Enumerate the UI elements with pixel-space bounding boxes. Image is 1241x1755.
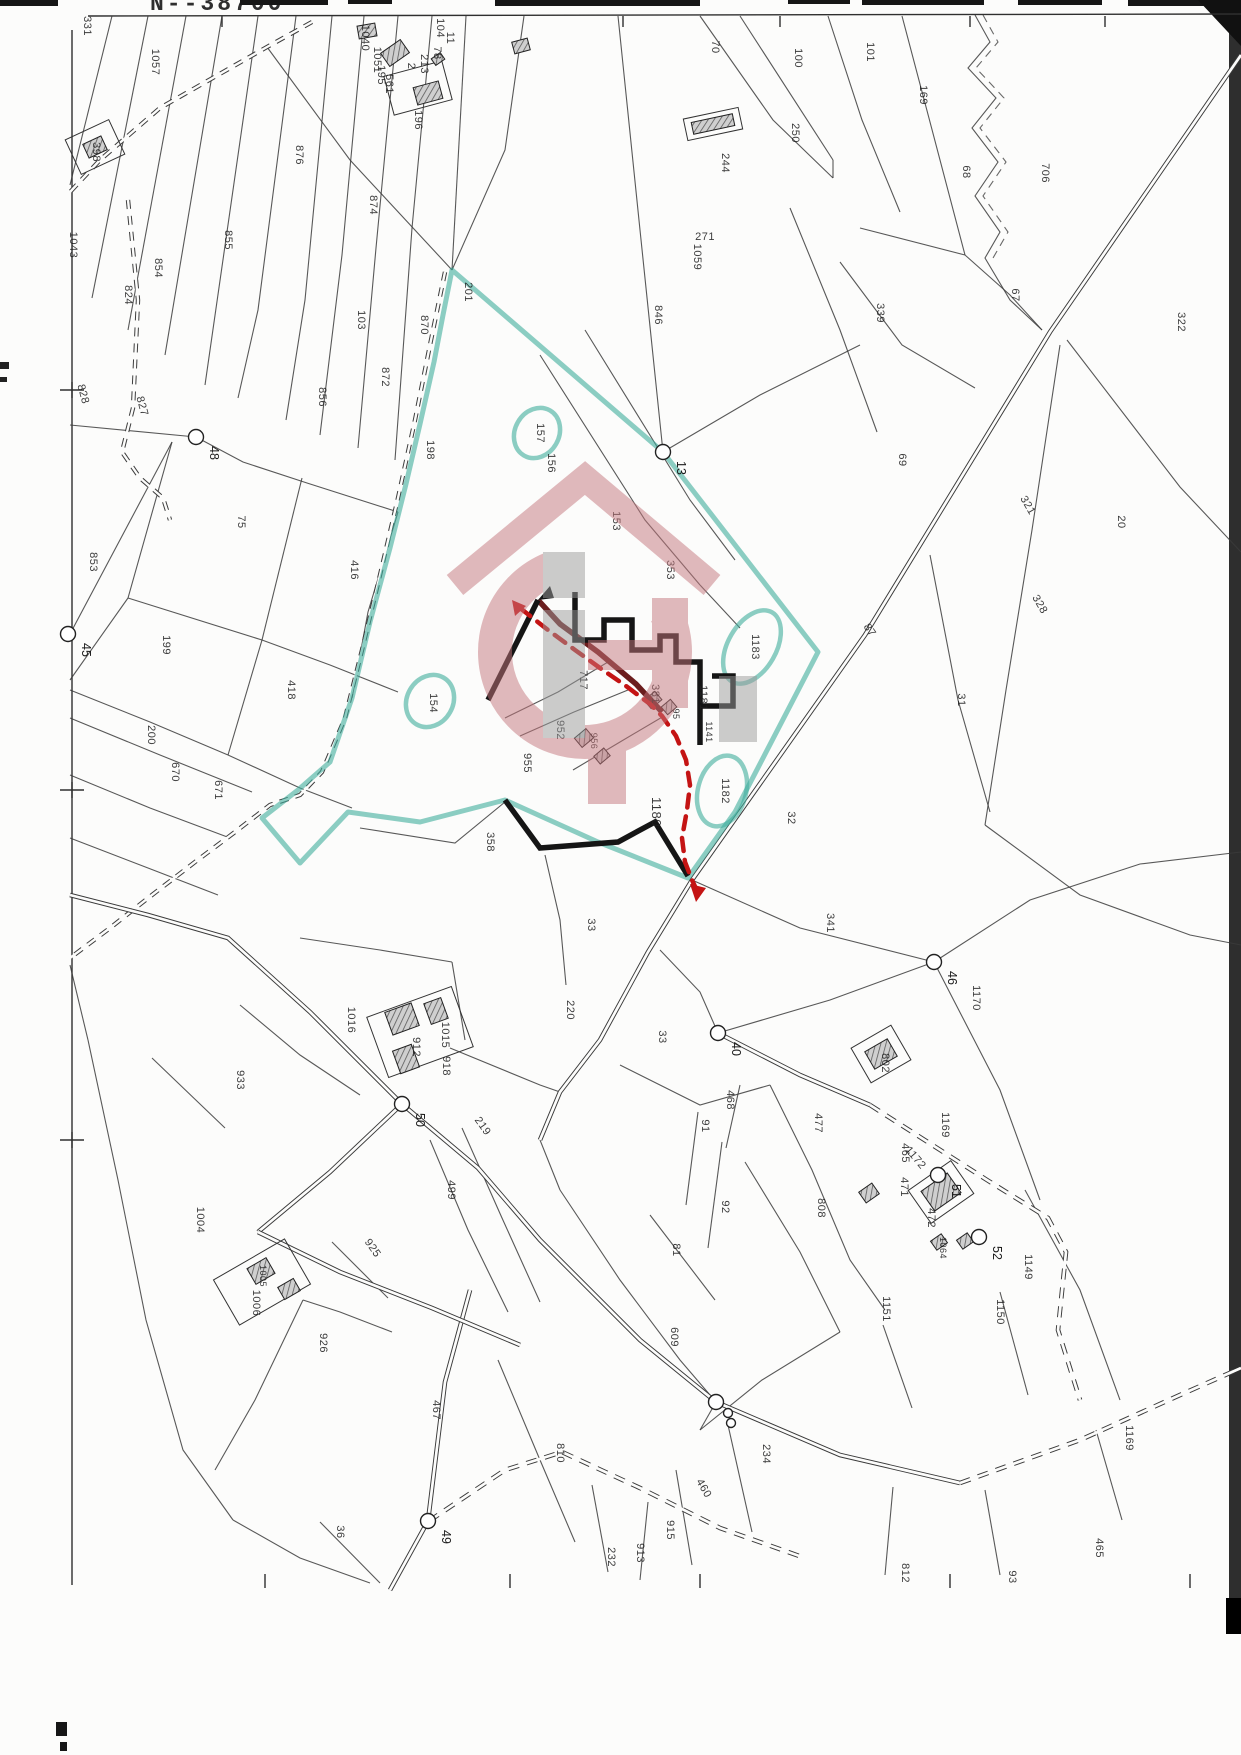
parcel-label: 471 bbox=[898, 1177, 910, 1197]
parcel-label: 358 bbox=[484, 832, 496, 852]
parcel-line bbox=[430, 1140, 508, 1312]
building bbox=[691, 114, 735, 134]
watermark-g-part-icon bbox=[652, 598, 688, 708]
parcel-line bbox=[70, 775, 230, 838]
survey-point bbox=[931, 1168, 946, 1183]
parcel-label: 913 bbox=[634, 1543, 646, 1563]
building bbox=[424, 998, 448, 1025]
building bbox=[512, 38, 531, 54]
scan-artifact bbox=[1226, 1598, 1241, 1634]
parcel-line bbox=[930, 555, 990, 812]
parcel-label: 460 bbox=[693, 1477, 713, 1500]
parcel-label: 828 bbox=[75, 383, 92, 405]
parcel-label: 339 bbox=[874, 303, 886, 323]
parcel-label: 1182 bbox=[719, 778, 731, 804]
survey-point bbox=[61, 627, 76, 642]
road-core bbox=[716, 1402, 960, 1483]
scan-artifact bbox=[862, 0, 984, 5]
parcel-line bbox=[286, 16, 332, 420]
parcel-line bbox=[303, 1300, 392, 1332]
parcel-line bbox=[692, 880, 934, 962]
parcel-label: 670 bbox=[169, 762, 181, 782]
parcel-label: 955 bbox=[521, 753, 533, 773]
survey-point-label: 52 bbox=[990, 1246, 1004, 1260]
survey-point bbox=[727, 1419, 736, 1428]
parcel-label: 331 bbox=[81, 16, 93, 36]
parcel-line bbox=[676, 1470, 692, 1565]
parcel-label: 808 bbox=[815, 1198, 827, 1218]
parcel-label: 933 bbox=[234, 1070, 246, 1090]
parcel-line bbox=[650, 1215, 715, 1300]
parcel-line bbox=[70, 838, 218, 895]
parcel-label: 244 bbox=[719, 153, 731, 173]
parcel-line bbox=[165, 16, 222, 355]
scan-artifact bbox=[60, 1742, 67, 1751]
parcel-label: 1180 bbox=[649, 797, 664, 827]
survey-point bbox=[656, 445, 671, 460]
parcel-label: 32 bbox=[785, 811, 797, 824]
parcel-line bbox=[840, 262, 975, 388]
parcel-label: 1169 bbox=[1123, 1425, 1135, 1451]
parcel-label: 101 bbox=[864, 42, 876, 62]
parcel-line bbox=[728, 1425, 752, 1532]
parcel-line bbox=[640, 1502, 648, 1580]
parcel-label: 1015 bbox=[439, 1022, 451, 1048]
survey-point bbox=[724, 1409, 733, 1418]
parcel-label: 925 bbox=[362, 1237, 383, 1260]
parcel-label: 853 bbox=[87, 552, 99, 572]
parcel-line bbox=[540, 1140, 560, 1190]
parcel-line bbox=[700, 1332, 840, 1430]
scanned-cadastral-map-page: N--38700 3311057398104382485485582882787… bbox=[0, 0, 1241, 1755]
parcel-label: 69 bbox=[896, 453, 908, 466]
parcel-line bbox=[985, 825, 1241, 945]
scan-artifact bbox=[56, 1722, 67, 1736]
parcel-label: 1141 bbox=[704, 721, 714, 742]
parcel-label: 91 bbox=[699, 1119, 711, 1132]
track-casing bbox=[70, 22, 312, 192]
parcel-line bbox=[240, 1005, 360, 1095]
road-core bbox=[390, 1290, 470, 1590]
road-casing bbox=[716, 1402, 960, 1483]
parcel-label: 874 bbox=[367, 195, 379, 215]
parcel-label: 824 bbox=[122, 285, 134, 305]
parcel-label: 232 bbox=[605, 1547, 617, 1567]
parcel-line bbox=[618, 16, 663, 452]
track-core bbox=[70, 22, 312, 192]
parcel-line bbox=[452, 16, 466, 270]
parcel-line bbox=[860, 228, 965, 255]
red-path-arrow bbox=[690, 884, 706, 902]
parcel-label: 810 bbox=[554, 1443, 566, 1463]
parcel-label: 250 bbox=[789, 123, 801, 143]
parcel-label: 198 bbox=[424, 440, 436, 460]
parcel-label: 70 bbox=[709, 40, 721, 53]
parcel-line bbox=[745, 1162, 840, 1332]
parcel-label: 1043 bbox=[67, 232, 79, 258]
parcel-label: 2 bbox=[405, 63, 417, 70]
parcel-label: 1170 bbox=[970, 985, 982, 1011]
parcel-line bbox=[462, 1128, 540, 1302]
parcel-line bbox=[228, 640, 262, 755]
parcel-label: 199 bbox=[160, 635, 172, 655]
parcel-label: 876 bbox=[293, 145, 305, 165]
parcel-label: 706 bbox=[1039, 163, 1051, 183]
parcel-label: 1183 bbox=[749, 634, 761, 660]
parcel-line bbox=[934, 962, 1040, 1200]
cadastral-map: N--38700 3311057398104382485485582882787… bbox=[0, 0, 1241, 1755]
parcel-line bbox=[985, 1490, 1000, 1575]
parcel-label: 1064 bbox=[938, 1237, 948, 1259]
parcel-line bbox=[1096, 1430, 1122, 1520]
parcel-label: 33 bbox=[585, 918, 597, 931]
road-core bbox=[70, 895, 716, 1402]
parcel-label: 561 bbox=[383, 74, 395, 94]
parcel-line bbox=[1067, 340, 1241, 552]
parcel-line bbox=[790, 208, 877, 432]
survey-point-label: 40 bbox=[729, 1042, 743, 1056]
survey-point-label: 49 bbox=[439, 1530, 453, 1544]
parcel-label: 220 bbox=[564, 1000, 576, 1020]
survey-point-label: 46 bbox=[945, 971, 959, 985]
parcel-label: 609 bbox=[668, 1327, 680, 1347]
parcel-label: 157 bbox=[534, 423, 546, 443]
survey-point-label: 45 bbox=[79, 643, 93, 657]
parcel-label: 31 bbox=[955, 693, 967, 706]
parcel-line bbox=[300, 938, 452, 962]
parcel-label: 467 bbox=[430, 1400, 442, 1420]
parcel-label: 472 bbox=[925, 1208, 937, 1228]
parcel-label: 322 bbox=[1175, 312, 1187, 332]
watermark-logo bbox=[455, 478, 757, 804]
road-core bbox=[258, 1104, 402, 1232]
parcel-line bbox=[660, 950, 718, 1033]
survey-point bbox=[189, 430, 204, 445]
survey-point bbox=[972, 1230, 987, 1245]
parcel-label: 328 bbox=[1029, 593, 1049, 616]
parcel-label: 219 bbox=[472, 1115, 493, 1138]
parcel-line bbox=[718, 962, 934, 1033]
parcel-line bbox=[262, 640, 398, 692]
parcel-label: 234 bbox=[760, 1444, 772, 1464]
parcel-line bbox=[196, 437, 398, 512]
parcel-label: 169 bbox=[917, 85, 929, 105]
parcel-label: 93 bbox=[1006, 1570, 1018, 1583]
parcel-line bbox=[560, 1190, 716, 1402]
watermark-i-icon bbox=[543, 610, 585, 738]
road-casing bbox=[540, 55, 1241, 1140]
stream-dashed-line bbox=[976, 15, 1008, 258]
survey-point bbox=[711, 1026, 726, 1041]
parcel-label: 855 bbox=[222, 230, 234, 250]
parcel-label: 477 bbox=[812, 1113, 824, 1133]
building-outline bbox=[367, 987, 473, 1078]
parcel-line bbox=[686, 1112, 698, 1205]
parcel-label: 1181 bbox=[697, 685, 709, 711]
scan-artifact bbox=[1018, 0, 1102, 5]
scan-artifact bbox=[0, 377, 7, 382]
survey-point bbox=[927, 955, 942, 970]
watermark-i-icon bbox=[543, 552, 585, 598]
parcel-label: 75 bbox=[235, 515, 247, 528]
scan-artifact bbox=[240, 0, 328, 5]
parcel-label: 468 bbox=[724, 1090, 736, 1110]
parcel-label: 1059 bbox=[691, 244, 703, 270]
parcel-line bbox=[663, 345, 860, 452]
survey-point-label: 51 bbox=[949, 1184, 963, 1198]
parcel-label: 870 bbox=[418, 315, 430, 335]
watermark-g-part-icon bbox=[588, 744, 626, 804]
parcel-label: 499 bbox=[445, 1180, 457, 1200]
parcel-label: 1005 bbox=[258, 1265, 268, 1287]
parcel-label: 416 bbox=[348, 560, 360, 580]
parcel-label: 827 bbox=[134, 395, 151, 417]
survey-point bbox=[421, 1514, 436, 1529]
parcel-line bbox=[228, 755, 352, 808]
building bbox=[413, 81, 443, 105]
parcel-label: 213 bbox=[418, 54, 430, 74]
parcel-label: 20 bbox=[1115, 515, 1127, 528]
parcel-label: 1040 bbox=[359, 25, 371, 51]
building bbox=[278, 1278, 301, 1299]
parcel-label: 11 bbox=[444, 32, 456, 44]
parcel-label: 671 bbox=[212, 780, 224, 800]
parcel-line bbox=[262, 478, 302, 640]
parcel-line bbox=[70, 442, 172, 634]
parcel-line bbox=[320, 16, 364, 435]
track-core bbox=[122, 200, 170, 520]
parcel-label: 1169 bbox=[939, 1112, 951, 1138]
parcel-label: 92 bbox=[719, 1200, 731, 1213]
survey-point bbox=[395, 1097, 410, 1112]
parcel-line bbox=[88, 1040, 233, 1520]
parcel-line bbox=[70, 425, 196, 437]
survey-point bbox=[709, 1395, 724, 1410]
parcel-line bbox=[238, 16, 296, 398]
building bbox=[385, 1003, 420, 1035]
parcel-line bbox=[320, 1522, 380, 1583]
parcel-label: 103 bbox=[355, 310, 367, 330]
parcel-label: 1150 bbox=[994, 1299, 1006, 1325]
scan-artifact bbox=[495, 0, 700, 6]
parcel-line bbox=[215, 1300, 303, 1470]
parcel-label: 81 bbox=[670, 1243, 682, 1256]
parcel-label: 33 bbox=[656, 1030, 668, 1043]
parcel-line bbox=[883, 1325, 912, 1408]
parcel-label: 856 bbox=[316, 387, 328, 407]
scan-artifact bbox=[0, 0, 58, 6]
parcel-line bbox=[450, 1048, 560, 1092]
parcel-line bbox=[452, 962, 465, 1040]
parcel-label: 465 bbox=[1093, 1538, 1105, 1558]
building bbox=[957, 1233, 974, 1249]
parcel-label: 78 bbox=[431, 46, 443, 59]
parcel-label: 912 bbox=[410, 1037, 422, 1057]
parcel-label: 341 bbox=[824, 913, 836, 933]
parcel-label: 854 bbox=[152, 258, 164, 278]
parcel-label: 1006 bbox=[250, 1290, 262, 1316]
survey-point-label: 50 bbox=[413, 1113, 427, 1127]
parcel-label: 418 bbox=[285, 680, 297, 700]
parcel-line bbox=[152, 1058, 225, 1128]
parcel-label: 156 bbox=[545, 453, 557, 473]
scan-edge-band bbox=[1229, 0, 1241, 1632]
parcel-label: 100 bbox=[792, 48, 804, 68]
parcel-line bbox=[128, 598, 262, 640]
parcel-line bbox=[885, 1487, 893, 1575]
parcel-label: 918 bbox=[440, 1056, 452, 1076]
parcel-label: 67 bbox=[1009, 288, 1021, 301]
survey-point-label: 13 bbox=[674, 461, 688, 475]
parcel-label: 271 bbox=[695, 231, 715, 243]
parcel-line bbox=[828, 16, 900, 212]
parcel-label: 36 bbox=[334, 1525, 346, 1538]
road-casing bbox=[70, 895, 716, 1402]
parcel-label: 196 bbox=[412, 110, 424, 130]
parcel-label: 812 bbox=[899, 1563, 911, 1583]
parcel-line bbox=[620, 1065, 770, 1105]
scan-artifact bbox=[788, 0, 850, 4]
parcel-line bbox=[934, 852, 1241, 962]
parcel-label: 154 bbox=[427, 693, 439, 713]
parcel-line bbox=[740, 16, 833, 160]
parcel-label: 1004 bbox=[194, 1207, 206, 1233]
survey-point-label: 48 bbox=[207, 446, 221, 460]
road-casing-dashed bbox=[429, 1452, 805, 1558]
parcel-line bbox=[452, 16, 524, 270]
building bbox=[859, 1183, 880, 1203]
parcel-label: 1057 bbox=[149, 49, 161, 75]
track-casing bbox=[122, 200, 170, 520]
scan-corner-mark bbox=[1198, 0, 1241, 46]
parcel-label: 200 bbox=[145, 725, 157, 745]
parcel-line bbox=[902, 16, 965, 255]
road-core bbox=[429, 1452, 805, 1558]
parcel-line bbox=[545, 855, 566, 985]
parcel-label: 846 bbox=[652, 305, 664, 325]
scan-artifact bbox=[0, 362, 9, 369]
parcel-label: 201 bbox=[462, 282, 474, 302]
parcel-label: 1016 bbox=[345, 1007, 357, 1033]
scan-artifact bbox=[348, 0, 392, 4]
parcel-label: 872 bbox=[379, 367, 391, 387]
parcel-line bbox=[70, 690, 228, 755]
watermark-i-icon bbox=[719, 676, 757, 742]
parcel-label: 398 bbox=[90, 142, 102, 162]
parcel-label: 68 bbox=[960, 165, 972, 178]
parcel-label: 926 bbox=[317, 1333, 329, 1353]
parcel-line bbox=[708, 1142, 722, 1248]
parcel-label: 915 bbox=[664, 1520, 676, 1540]
parcel-label: 1149 bbox=[1022, 1254, 1034, 1280]
parcel-label: 802 bbox=[879, 1053, 891, 1073]
parcel-label: 1151 bbox=[880, 1296, 892, 1322]
stream-line bbox=[968, 15, 1042, 330]
